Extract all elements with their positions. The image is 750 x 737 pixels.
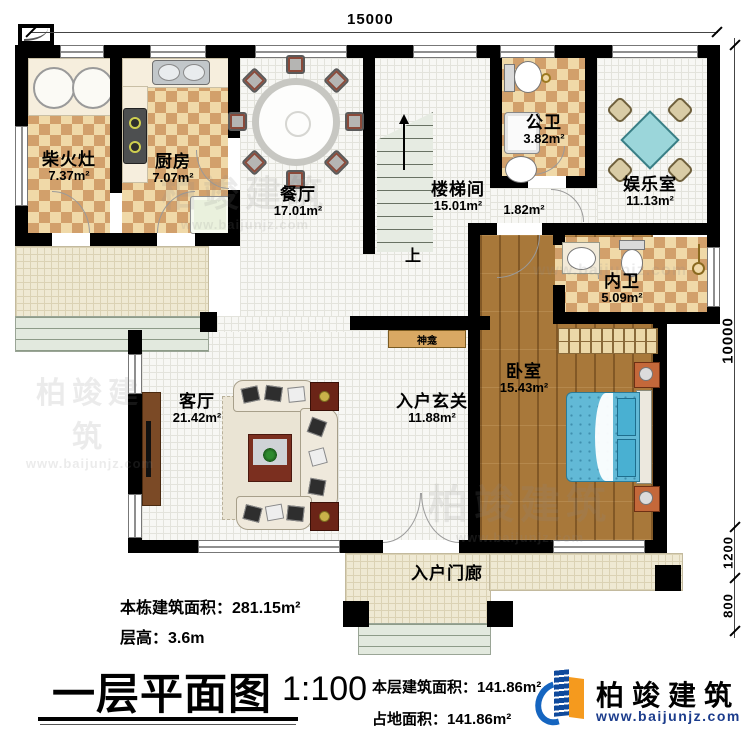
bath-sink	[505, 156, 537, 183]
room-name: 娱乐室	[605, 175, 695, 194]
sofa-pillow	[287, 386, 305, 403]
dining-chair	[286, 55, 305, 74]
room-name: 卧室	[482, 362, 566, 381]
window-top-publicbath	[500, 45, 555, 58]
terrace-corner-column	[200, 312, 217, 332]
room-label-stairwell: 楼梯间 15.01m²	[416, 180, 500, 214]
porch-column	[487, 601, 513, 627]
room-name: 柴火灶	[28, 150, 110, 169]
room-area: 11.88m²	[372, 411, 492, 426]
room-area: 15.43m²	[482, 381, 566, 396]
vanity-sink	[567, 247, 596, 270]
room-label-foyer: 入户玄关 11.88m²	[372, 392, 492, 426]
room-area: 7.37m²	[28, 169, 110, 184]
wall-hall-south-a	[468, 223, 497, 235]
side-table	[310, 382, 339, 411]
sofa-pillow	[308, 478, 327, 497]
dim-right-value: 1200	[721, 536, 736, 569]
floor-height-text: 层高：3.6m	[120, 624, 204, 648]
wall-kitchen-dining-lower	[228, 190, 240, 246]
corridor-area-label: 1.82m²	[490, 203, 558, 218]
firewood-stove-burner	[72, 67, 114, 109]
window-top-firewood	[60, 45, 104, 58]
company-url: www.baijunjz.com	[596, 708, 741, 724]
kitchen-sink	[152, 60, 210, 85]
room-name: 入户门廊	[392, 564, 502, 583]
wall-stairwell-bath	[490, 58, 502, 188]
porch-column	[343, 601, 369, 627]
window-living-left-2	[128, 494, 142, 538]
nightstand-lamp	[639, 491, 653, 505]
sofa-pillow	[265, 504, 284, 522]
nightstand	[634, 362, 660, 388]
sofa-pillow	[241, 385, 261, 403]
plan-scale: 1:100	[282, 670, 367, 709]
plan-title-text: 一层平面图	[52, 671, 272, 719]
building-total-area-text: 本栋建筑面积：281.15m²	[120, 594, 301, 618]
stairs-up-label: 上	[398, 248, 428, 266]
wall-firewood-kitchen	[110, 58, 122, 193]
title-underline-thick	[38, 717, 298, 721]
room-label-living: 客厅 21.42m²	[152, 392, 242, 426]
plan-title: 一层平面图	[52, 660, 272, 722]
side-table-deco	[319, 391, 330, 402]
logo-building-orange	[569, 677, 584, 719]
window-top-kitchen	[150, 45, 206, 58]
room-area: 15.01m²	[416, 199, 500, 214]
room-area: 7.07m²	[130, 171, 216, 186]
sofa-pillow	[264, 385, 283, 402]
dim-right-value: 10000	[720, 317, 737, 364]
vanity	[562, 242, 600, 274]
room-name: 内卫	[582, 272, 662, 291]
nightstand-lamp	[639, 367, 653, 381]
sink-basin	[183, 64, 205, 81]
wall-bottom-b	[340, 540, 383, 553]
stove-burner	[129, 117, 141, 129]
room-label-kitchen: 厨房 7.07m²	[130, 152, 216, 186]
dining-chair	[228, 112, 247, 131]
wardrobe	[558, 328, 658, 354]
wall-innerbath-bottom	[553, 312, 720, 324]
room-label-dining: 餐厅 17.01m²	[250, 185, 346, 219]
wall-dining-stairwell	[363, 58, 375, 254]
room-label-bedroom: 卧室 15.43m²	[482, 362, 566, 396]
window-left-firewood	[15, 126, 28, 206]
logo-building-blue	[554, 669, 569, 717]
window-top-entertainment	[612, 45, 698, 58]
toilet-bowl	[514, 61, 542, 93]
floor-drain	[541, 73, 551, 83]
room-name: 公卫	[506, 113, 582, 132]
dining-table-center	[285, 111, 311, 137]
room-label-firewood: 柴火灶 7.37m²	[28, 150, 110, 184]
firewood-stove-burner	[33, 67, 75, 109]
shrine-label: 神龛	[417, 336, 437, 347]
wall-bath-entertainment	[585, 58, 597, 188]
window-top-stairwell	[413, 45, 477, 58]
tv	[146, 421, 151, 477]
room-name: 厨房	[130, 152, 216, 171]
dim-right-mid: 1200	[721, 525, 736, 581]
dining-chair	[345, 112, 364, 131]
room-name: 入户玄关	[372, 392, 492, 411]
room-area: 5.09m²	[582, 291, 662, 306]
dim-right-main: 10000	[720, 313, 737, 369]
room-label-public-bath: 公卫 3.82m²	[506, 113, 582, 147]
window-bedroom-bottom	[553, 540, 645, 553]
wall-hall-south-b	[542, 223, 720, 235]
bed-blanket-fold	[595, 393, 613, 481]
room-label-inner-bath: 内卫 5.09m²	[582, 272, 662, 306]
side-table	[310, 502, 339, 531]
living-dining-passage-floor	[217, 316, 350, 332]
wardrobe-rail	[559, 341, 657, 342]
dim-top-value: 15000	[347, 11, 394, 28]
window-living-left-1	[128, 354, 142, 394]
table-plant	[262, 447, 278, 463]
wall-bottom-a	[128, 540, 198, 553]
stairs-up-arrow-head	[399, 114, 409, 124]
nightstand	[634, 486, 660, 512]
porch-column	[655, 565, 681, 591]
floor-height-value: 层高：3.6m	[120, 630, 204, 647]
coffee-table	[248, 434, 292, 482]
floor-area-text: 本层建筑面积：141.86m²	[372, 676, 541, 697]
side-table-deco	[319, 511, 330, 522]
company-logo	[538, 668, 590, 730]
window-right-innerbath	[707, 247, 720, 307]
wall-firewood-bottom-b	[90, 233, 157, 246]
wall-bottom-d	[480, 540, 553, 553]
shower-head-stem	[698, 244, 700, 264]
wall-publicbath-bottom-b	[566, 176, 585, 188]
sink-basin	[158, 64, 180, 81]
dim-tick	[729, 39, 740, 50]
fridge	[190, 196, 230, 234]
dining-table	[252, 78, 340, 166]
wall-foyer-north	[350, 316, 490, 330]
bed-pillow	[617, 398, 636, 436]
room-area: 21.42m²	[152, 411, 242, 426]
bed	[566, 392, 640, 482]
sofa-pillow	[242, 504, 262, 523]
stairs-up-arrow-line	[403, 122, 405, 170]
floor-plan-page: 神龛 柴火灶 7.37m² 厨房 7.07m² 餐厅 17.01m² 楼梯间 1…	[0, 0, 750, 737]
title-underline-thin	[40, 724, 296, 725]
dim-top-label: 15000	[347, 11, 394, 28]
footprint-area-value: 占地面积：141.86m²	[372, 711, 511, 728]
room-area: 11.13m²	[605, 194, 695, 209]
corridor-area: 1.82m²	[503, 202, 544, 217]
shrine: 神龛	[388, 330, 466, 348]
porch-steps	[358, 623, 491, 655]
sofa-pillow	[307, 417, 328, 438]
dim-line-top	[30, 32, 718, 33]
room-name: 客厅	[152, 392, 242, 411]
room-label-entertainment: 娱乐室 11.13m²	[605, 175, 695, 209]
total-area-value: 本栋建筑面积：281.15m²	[120, 600, 301, 617]
company-name-text: 柏竣建筑	[596, 680, 740, 711]
room-area: 3.82m²	[506, 132, 582, 147]
sofa-right-chaise	[300, 408, 338, 510]
window-living-bottom	[198, 540, 340, 553]
company-url-text: www.baijunjz.com	[596, 708, 741, 724]
terrace-floor	[15, 246, 209, 318]
footprint-area-text: 占地面积：141.86m²	[372, 708, 511, 729]
room-label-porch: 入户门廊	[392, 564, 502, 583]
sofa-pillow	[286, 505, 304, 522]
room-name: 楼梯间	[416, 180, 500, 199]
wall-innerbath-left-bottom	[553, 285, 565, 312]
wall-firewood-bottom-a	[15, 233, 52, 246]
room-area: 17.01m²	[250, 204, 346, 219]
sofa-pillow	[308, 447, 328, 467]
bed-pillow	[617, 439, 636, 477]
terrace-steps	[15, 316, 209, 352]
floor-area-value: 本层建筑面积：141.86m²	[372, 679, 541, 696]
sofa-bottom	[236, 496, 312, 530]
dim-right-value: 800	[721, 593, 736, 618]
dim-right-bottom: 800	[721, 578, 736, 634]
plan-scale-text: 1:100	[282, 670, 367, 708]
room-name: 餐厅	[250, 185, 346, 204]
wall-bottom-c	[459, 540, 480, 553]
up-text: 上	[405, 248, 421, 265]
wall-bottom-e	[645, 540, 667, 553]
porch-floor-right	[489, 553, 683, 591]
